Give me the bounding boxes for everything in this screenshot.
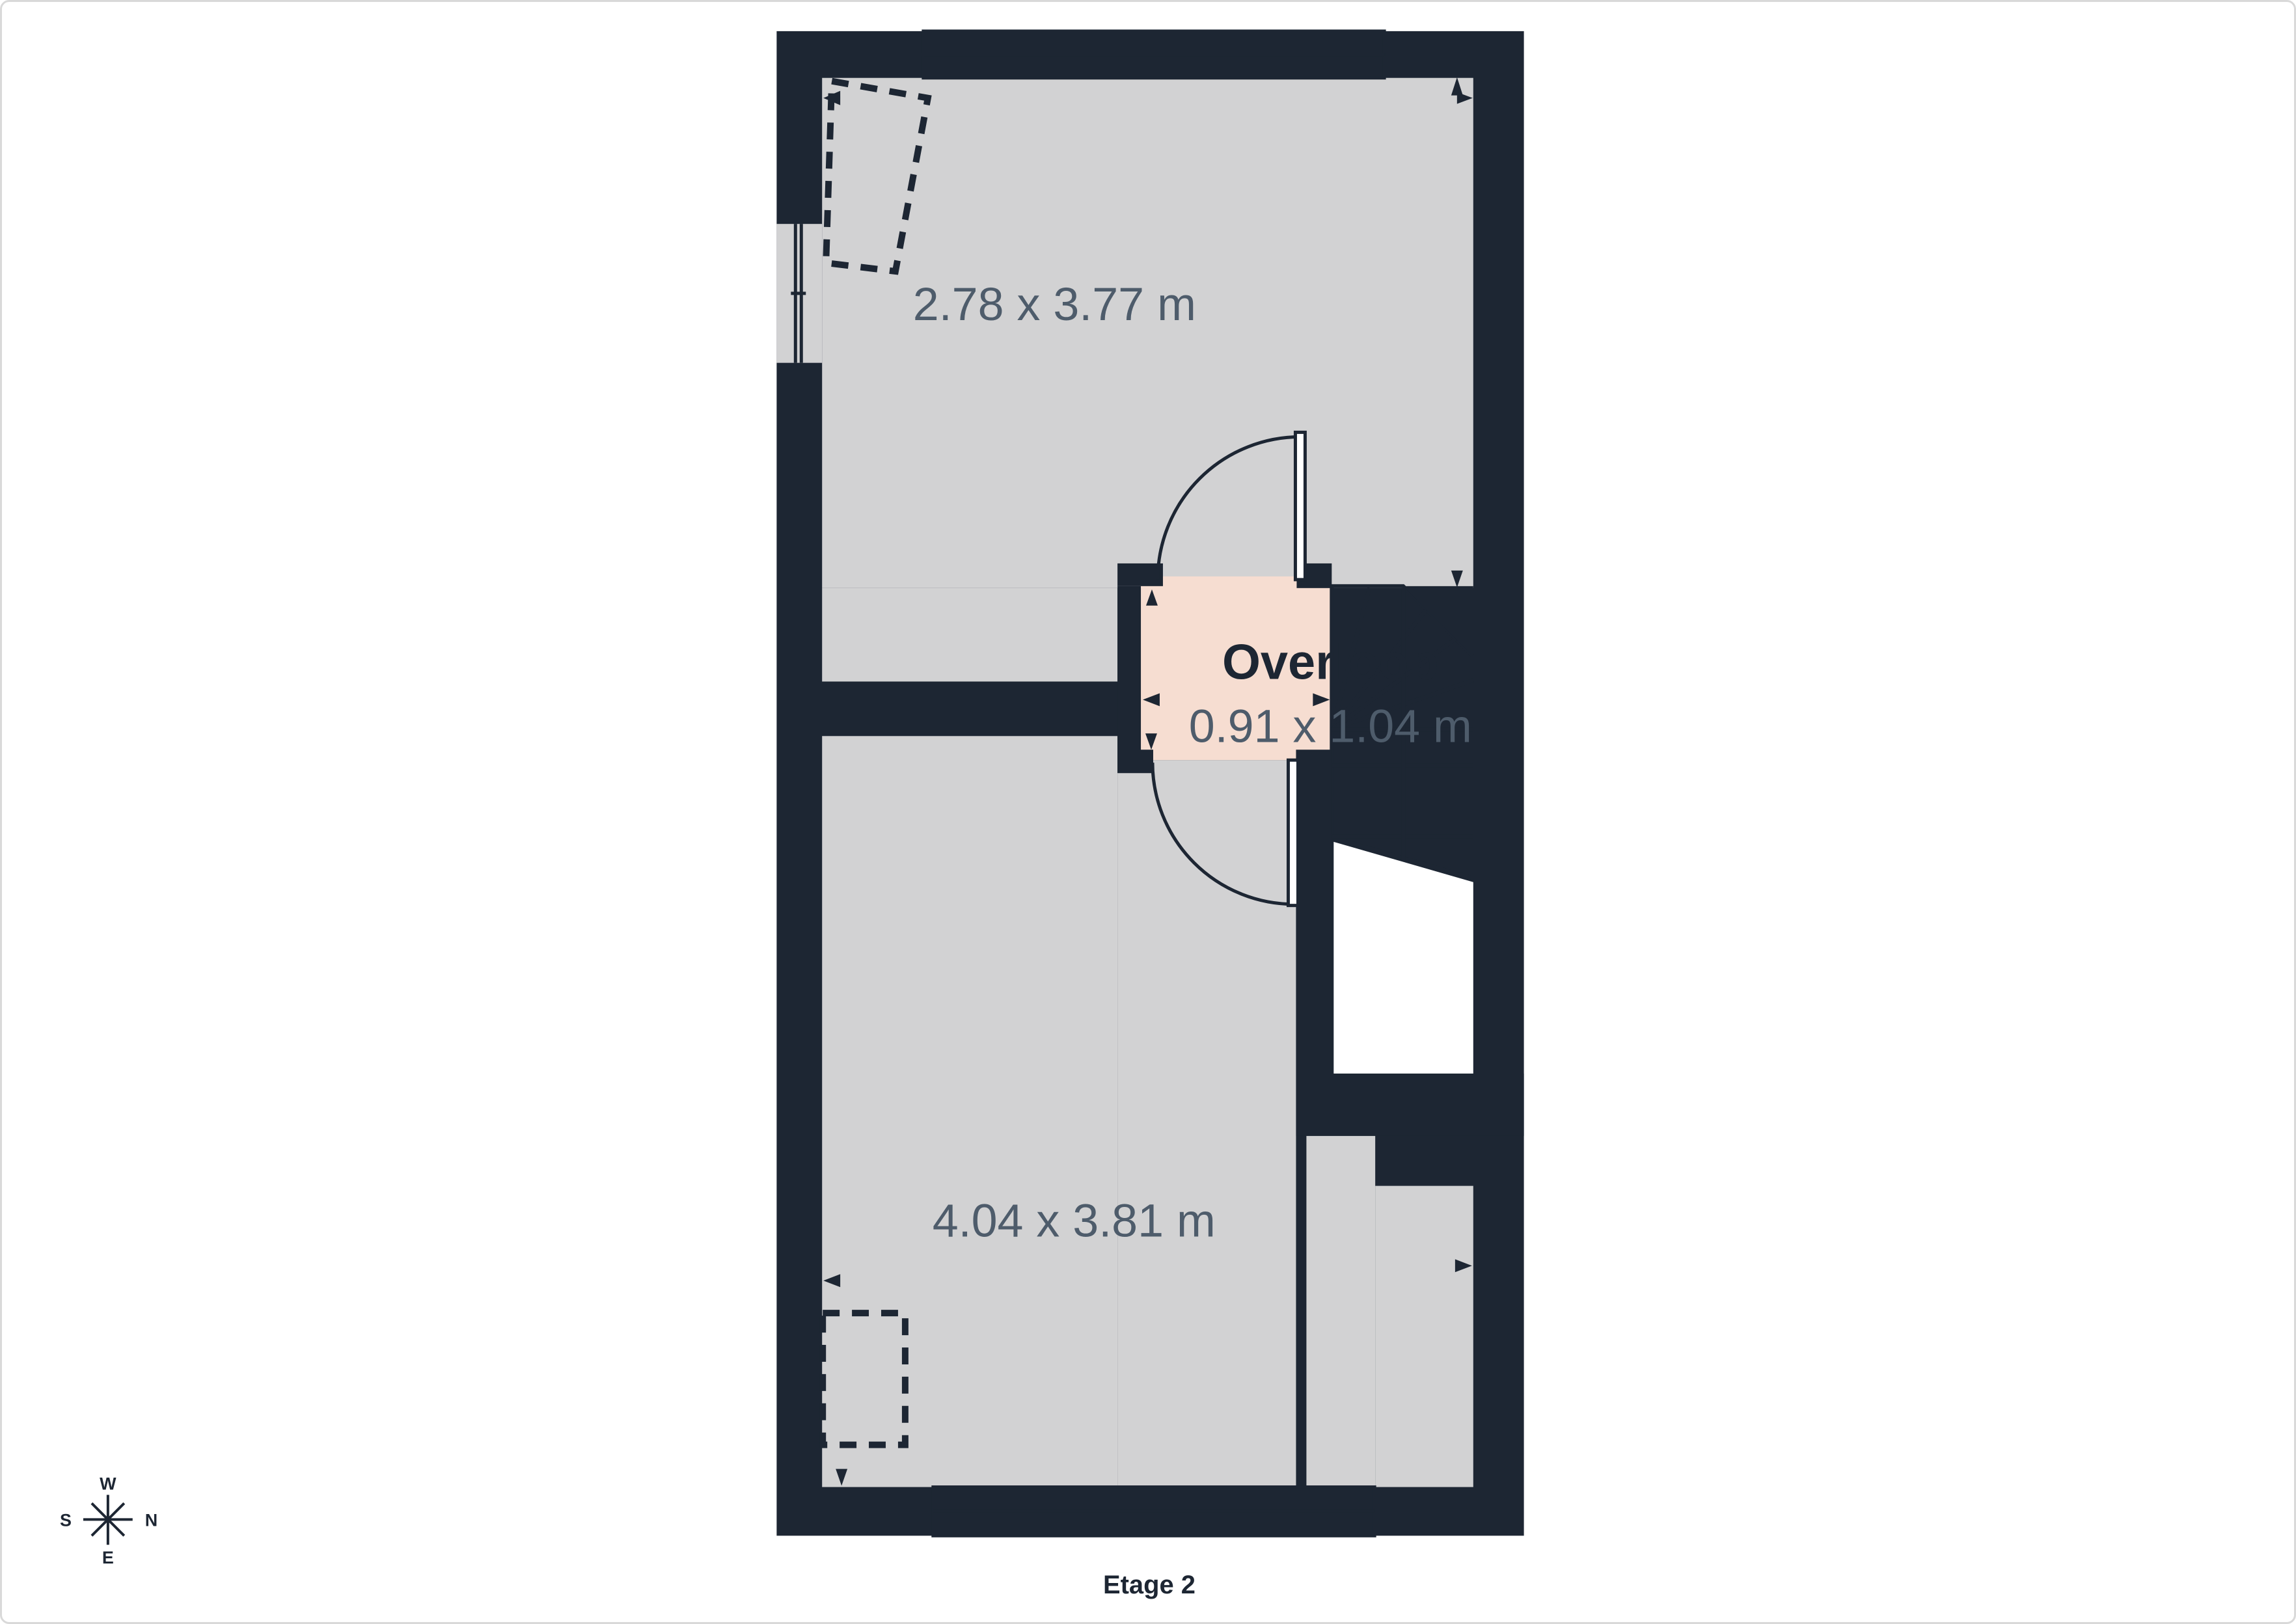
room-top-dimensions: 2.78 x 3.77 m xyxy=(913,278,1196,331)
compass-west-label: W xyxy=(100,1474,116,1493)
compass-rose-icon: W N E S xyxy=(60,1474,157,1567)
compass-north-label: N xyxy=(145,1510,157,1530)
floor-label: Etage 2 xyxy=(1103,1571,1196,1599)
window-left xyxy=(776,224,822,362)
stairwell-void xyxy=(1333,842,1473,1074)
landing-dimensions: 0.91 x 1.04 m xyxy=(1189,700,1472,752)
floorplan-page: 2.78 x 3.77 m Overloop 0.91 x 1.04 m 4.0… xyxy=(0,0,2296,1624)
landing-name: Overloop xyxy=(1222,634,1439,690)
compass-east-label: E xyxy=(102,1548,114,1567)
room-bottom-dimensions: 4.04 x 3.81 m xyxy=(933,1195,1216,1247)
floorplan-canvas: 2.78 x 3.77 m Overloop 0.91 x 1.04 m 4.0… xyxy=(2,2,2294,1622)
compass-south-label: S xyxy=(60,1510,72,1530)
